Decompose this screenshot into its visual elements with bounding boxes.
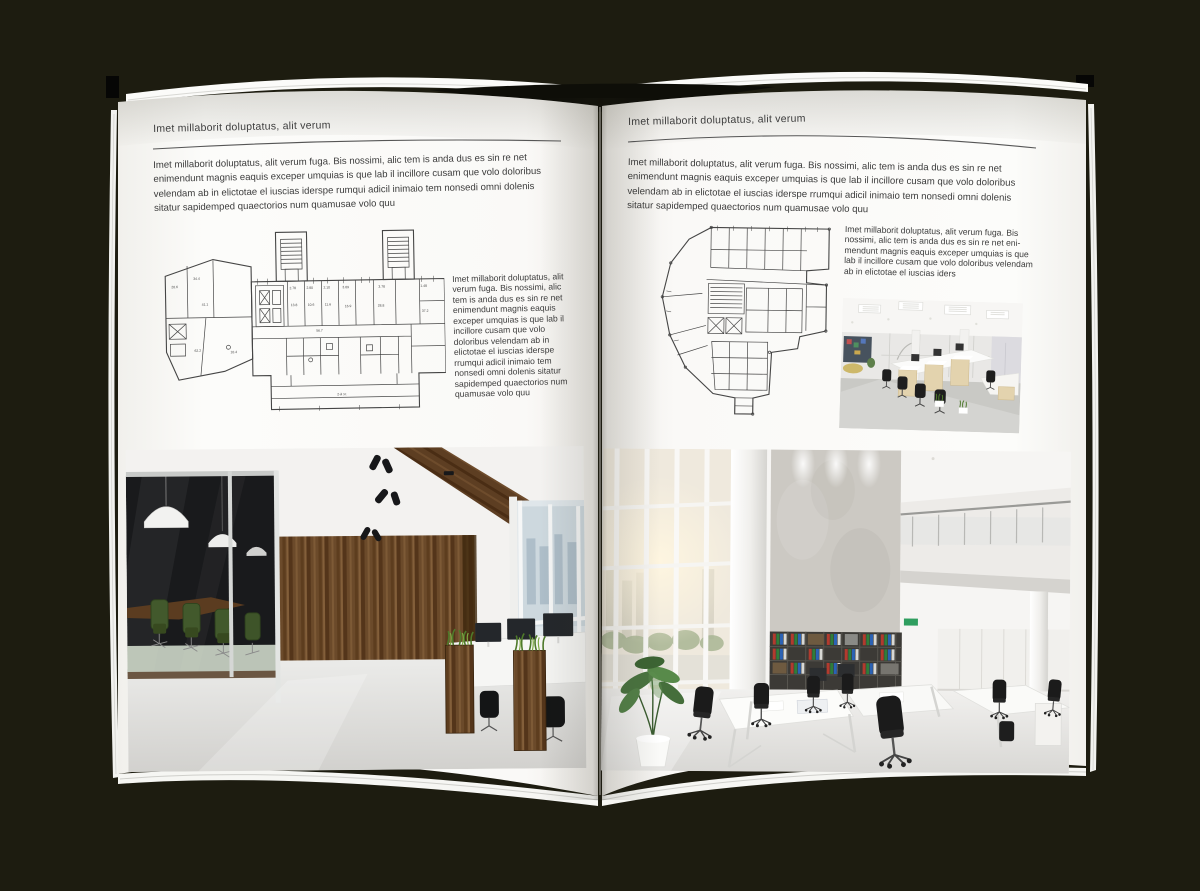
meeting-room-floor — [127, 645, 277, 674]
svg-text:34.4: 34.4 — [193, 277, 200, 281]
left-caption: Imet millaborit doluptatus, alit verum f… — [452, 271, 571, 400]
right-caption: Imet millaborit doluptatus, alit verum f… — [844, 224, 1043, 281]
wood-wall — [278, 535, 475, 661]
column-left — [729, 449, 767, 699]
window-wall — [601, 448, 744, 699]
left-plan-labels: 2.78 2.80 2.10 3.09 3.78 1.48 13.8 10.6 … — [171, 273, 430, 399]
left-intro-paragraph: Imet millaborit doluptatus, alit verum f… — [153, 150, 562, 216]
waste-bin — [999, 721, 1014, 741]
right-intro-paragraph: Imet millaborit doluptatus, alit verum f… — [627, 156, 1026, 220]
svg-text:2-й эт.: 2-й эт. — [337, 392, 347, 396]
svg-text:37.2: 37.2 — [422, 309, 429, 313]
svg-text:11.6: 11.6 — [325, 302, 332, 306]
meeting-room — [126, 471, 281, 704]
right-floor-plan — [649, 221, 848, 420]
small-office-photo — [839, 298, 1023, 433]
right-office-photo — [601, 448, 1071, 773]
cover-corner-left — [106, 76, 119, 98]
svg-text:10.6: 10.6 — [308, 303, 315, 307]
exit-sign — [904, 618, 918, 625]
svg-text:56.7: 56.7 — [316, 329, 323, 333]
svg-text:10.4: 10.4 — [230, 350, 237, 354]
right-plan-walls — [659, 225, 830, 417]
svg-text:62.2: 62.2 — [194, 349, 201, 353]
svg-text:13.8: 13.8 — [291, 303, 298, 307]
left-floor-plan: 2.78 2.80 2.10 3.09 3.78 1.48 13.8 10.6 … — [156, 226, 446, 417]
bookshelf — [769, 632, 901, 691]
left-plan-walls — [164, 230, 446, 414]
pedestal — [1035, 703, 1061, 745]
svg-text:2.78: 2.78 — [289, 286, 296, 290]
svg-text:28.8: 28.8 — [378, 304, 385, 308]
mezzanine — [900, 486, 1071, 593]
ceiling — [842, 298, 1023, 337]
svg-text:3.78: 3.78 — [378, 285, 385, 289]
svg-text:16.9: 16.9 — [345, 304, 352, 308]
svg-text:41.1: 41.1 — [202, 303, 209, 307]
svg-text:1.48: 1.48 — [420, 284, 427, 288]
svg-text:3.09: 3.09 — [342, 285, 349, 289]
svg-text:20.6: 20.6 — [171, 285, 178, 289]
concrete-wall — [770, 448, 901, 632]
column-right — [1029, 591, 1048, 695]
magazine-spread: Imet millaborit doluptatus, alit verum I… — [0, 0, 1200, 891]
svg-text:2.80: 2.80 — [306, 286, 313, 290]
svg-text:2.10: 2.10 — [323, 285, 330, 289]
left-office-photo — [126, 446, 587, 772]
